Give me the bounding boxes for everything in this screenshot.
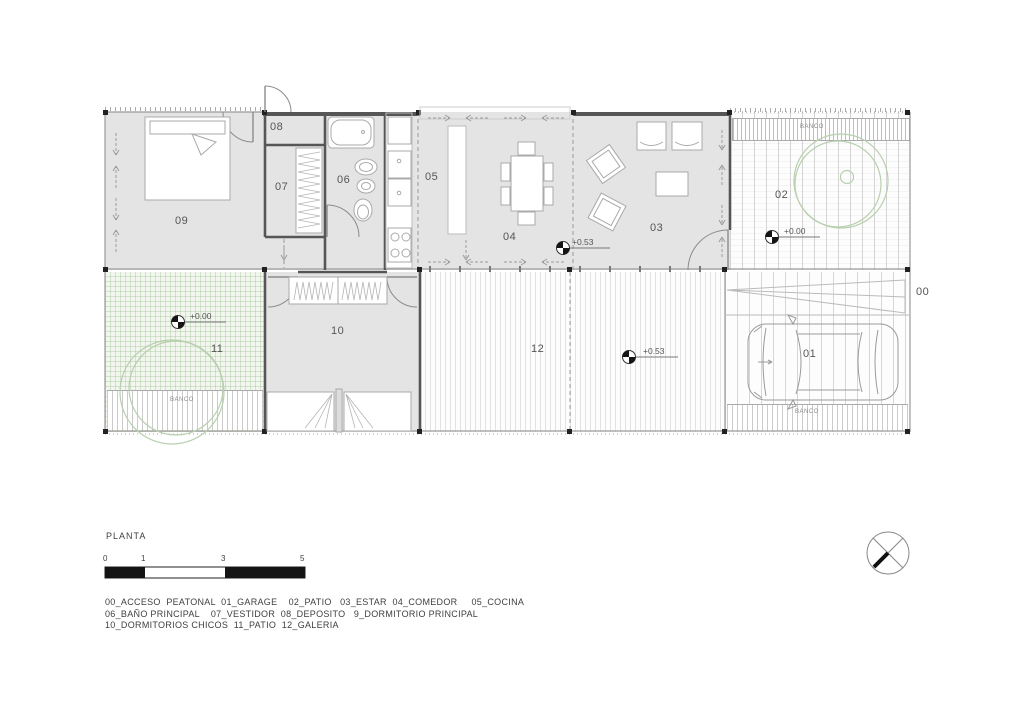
- drawing-title: PLANTA: [106, 531, 146, 541]
- banco-label-patio11: BANCO: [170, 397, 194, 403]
- room-label-10: 10: [331, 325, 344, 337]
- legend-line-3: 10_DORMITORIOS CHICOS 11_PATIO 12_GALERI…: [105, 620, 524, 632]
- scale-tick-5: 5: [300, 554, 304, 563]
- room-label-11: 11: [211, 343, 223, 355]
- legend-line-1: 00_ACCESO PEATONAL 01_GARAGE 02_PATIO 03…: [105, 597, 524, 609]
- banco-label-patio2: BANCO: [800, 124, 824, 130]
- banco-label-garage: BANCO: [795, 409, 819, 415]
- scale-tick-3: 3: [221, 554, 225, 563]
- level-label-galeria: +0.53: [643, 346, 665, 356]
- room-label-02: 02: [775, 189, 788, 201]
- room-label-06: 06: [337, 174, 350, 186]
- scale-bar: [105, 567, 305, 578]
- floor-plan-sheet: 09 08 07 06 05 04 03 02 11 10 12 01 00 B…: [0, 0, 1024, 724]
- level-label-estar: +0.53: [572, 237, 594, 247]
- level-label-patio2: +0.00: [784, 226, 806, 236]
- room-label-03: 03: [650, 222, 663, 234]
- room-label-00: 00: [916, 286, 929, 298]
- scale-tick-1: 1: [141, 554, 145, 563]
- galeria-12-area: [420, 272, 725, 432]
- level-label-patio11: +0.00: [190, 311, 212, 321]
- room-label-12: 12: [531, 343, 544, 355]
- room-label-05: 05: [425, 171, 438, 183]
- room-10-area: [265, 272, 420, 432]
- house-interior-area: [105, 112, 730, 270]
- kitchen-counter-area: [386, 113, 412, 268]
- eave-ticks-north: [105, 107, 265, 111]
- room-label-07: 07: [275, 181, 288, 193]
- scale-tick-0: 0: [103, 554, 107, 563]
- room-label-09: 09: [175, 215, 188, 227]
- room-label-01: 01: [803, 348, 816, 360]
- legend: 00_ACCESO PEATONAL 01_GARAGE 02_PATIO 03…: [105, 597, 524, 632]
- room-label-08: 08: [270, 121, 283, 133]
- north-arrow-icon: [867, 532, 909, 574]
- room-label-04: 04: [503, 231, 516, 243]
- eave-ticks-patio: [730, 108, 910, 112]
- legend-line-2: 06_BAÑO PRINCIPAL 07_VESTIDOR 08_DEPOSIT…: [105, 609, 524, 621]
